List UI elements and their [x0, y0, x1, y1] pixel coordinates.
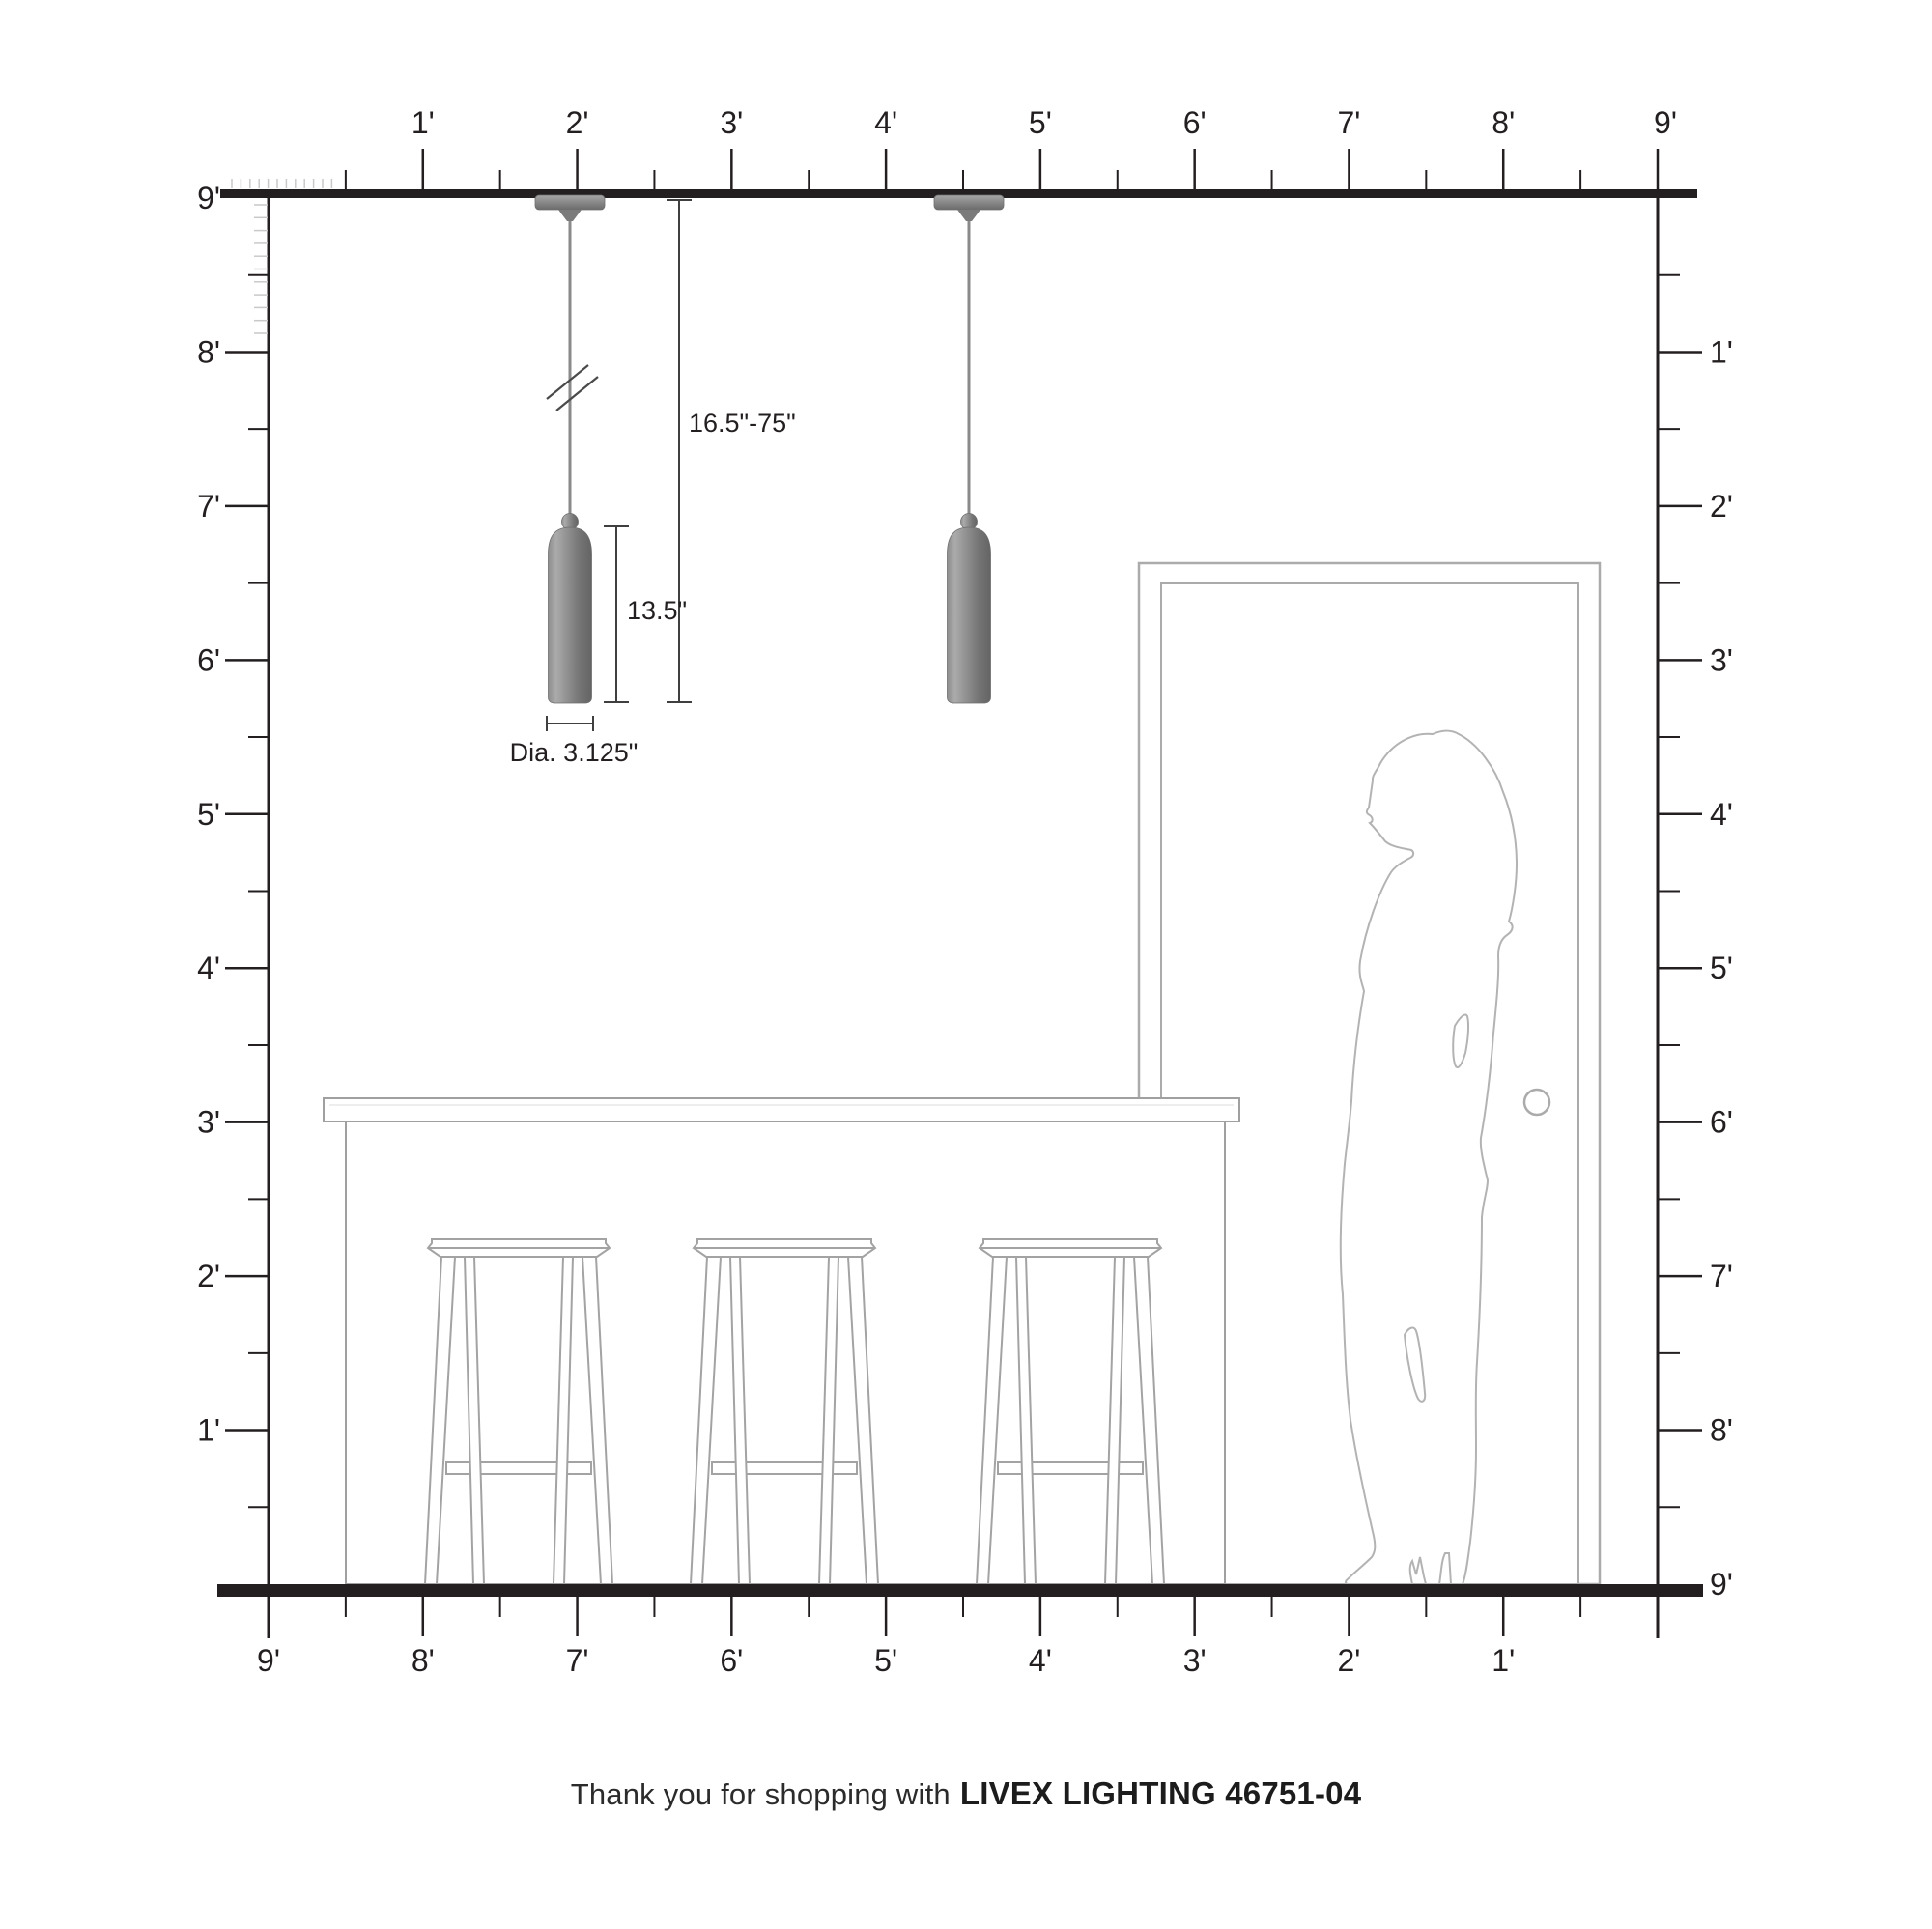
- ruler-label: 3': [720, 105, 743, 140]
- ruler-label: 6': [1710, 1105, 1733, 1140]
- dimension-fixture-height: [604, 526, 629, 702]
- ruler-label: 5': [1029, 105, 1052, 140]
- island-countertop: [324, 1098, 1239, 1121]
- pendant-light-1: [535, 195, 605, 703]
- ruler-label: 8': [412, 1643, 435, 1678]
- ruler-label: 1': [1710, 334, 1733, 369]
- ruler-left: 9'8'7'6'5'4'3'2'1': [197, 181, 269, 1507]
- ruler-label: 2': [1710, 489, 1733, 524]
- ruler-label: 5': [197, 797, 220, 832]
- footer-thanks-text: Thank you for shopping with: [571, 1777, 951, 1811]
- ruler-label: 7': [1710, 1259, 1733, 1293]
- kitchen-island: [324, 1098, 1239, 1584]
- door-knob: [1524, 1090, 1549, 1115]
- ruler-label: 8': [1710, 1413, 1733, 1448]
- footer-message: Thank you for shopping withLIVEX LIGHTIN…: [0, 1775, 1932, 1812]
- footer-brand-text: LIVEX LIGHTING 46751-04: [960, 1775, 1361, 1811]
- ruler-label: 4': [874, 105, 897, 140]
- ruler-bottom: 9'8'7'6'5'4'3'2'1': [257, 1597, 1580, 1678]
- ruler-label: 4': [1710, 797, 1733, 832]
- ruler-label: 1': [412, 105, 435, 140]
- ruler-label: 4': [197, 950, 220, 985]
- ruler-label: 4': [1029, 1643, 1052, 1678]
- ruler-label: 7': [197, 489, 220, 524]
- ruler-label: 9': [1710, 1567, 1733, 1602]
- pendant-light-2: [934, 195, 1004, 703]
- ruler-label: 7': [1337, 105, 1360, 140]
- ruler-label: 9': [197, 181, 220, 215]
- ruler-label: 8': [1492, 105, 1515, 140]
- ruler-label: 6': [1183, 105, 1207, 140]
- ruler-label: 2': [197, 1259, 220, 1293]
- fixture-diameter-label: Dia. 3.125": [510, 738, 639, 767]
- ruler-label: 3': [1710, 642, 1733, 677]
- ruler-label: 2': [566, 105, 589, 140]
- ruler-label: 1': [197, 1413, 220, 1448]
- ruler-label: 8': [197, 334, 220, 369]
- ruler-top: 1'2'3'4'5'6'7'8'9': [232, 105, 1677, 189]
- ruler-label: 7': [566, 1643, 589, 1678]
- suspension-range-label: 16.5"-75": [689, 409, 796, 438]
- ruler-label: 2': [1337, 1643, 1360, 1678]
- ruler-label: 1': [1492, 1643, 1515, 1678]
- ruler-label: 9': [1654, 105, 1677, 140]
- ruler-label: 6': [197, 642, 220, 677]
- ruler-label: 6': [720, 1643, 743, 1678]
- scale-diagram-canvas: 1'2'3'4'5'6'7'8'9' 9'8'7'6'5'4'3'2'1' 1'…: [0, 0, 1932, 1929]
- ruler-label: 5': [1710, 950, 1733, 985]
- ruler-label: 3': [1183, 1643, 1207, 1678]
- fixture-height-label: 13.5": [627, 596, 687, 625]
- ruler-label: 5': [874, 1643, 897, 1678]
- ruler-right: 1'2'3'4'5'6'7'8'9': [1658, 275, 1733, 1602]
- dimension-fixture-diameter: [547, 716, 593, 731]
- cord-break-symbol: [547, 365, 598, 411]
- floor-bar: [217, 1584, 1703, 1597]
- dimension-suspension: [667, 199, 692, 702]
- ruler-label: 3': [197, 1105, 220, 1140]
- ruler-label: 9': [257, 1643, 280, 1678]
